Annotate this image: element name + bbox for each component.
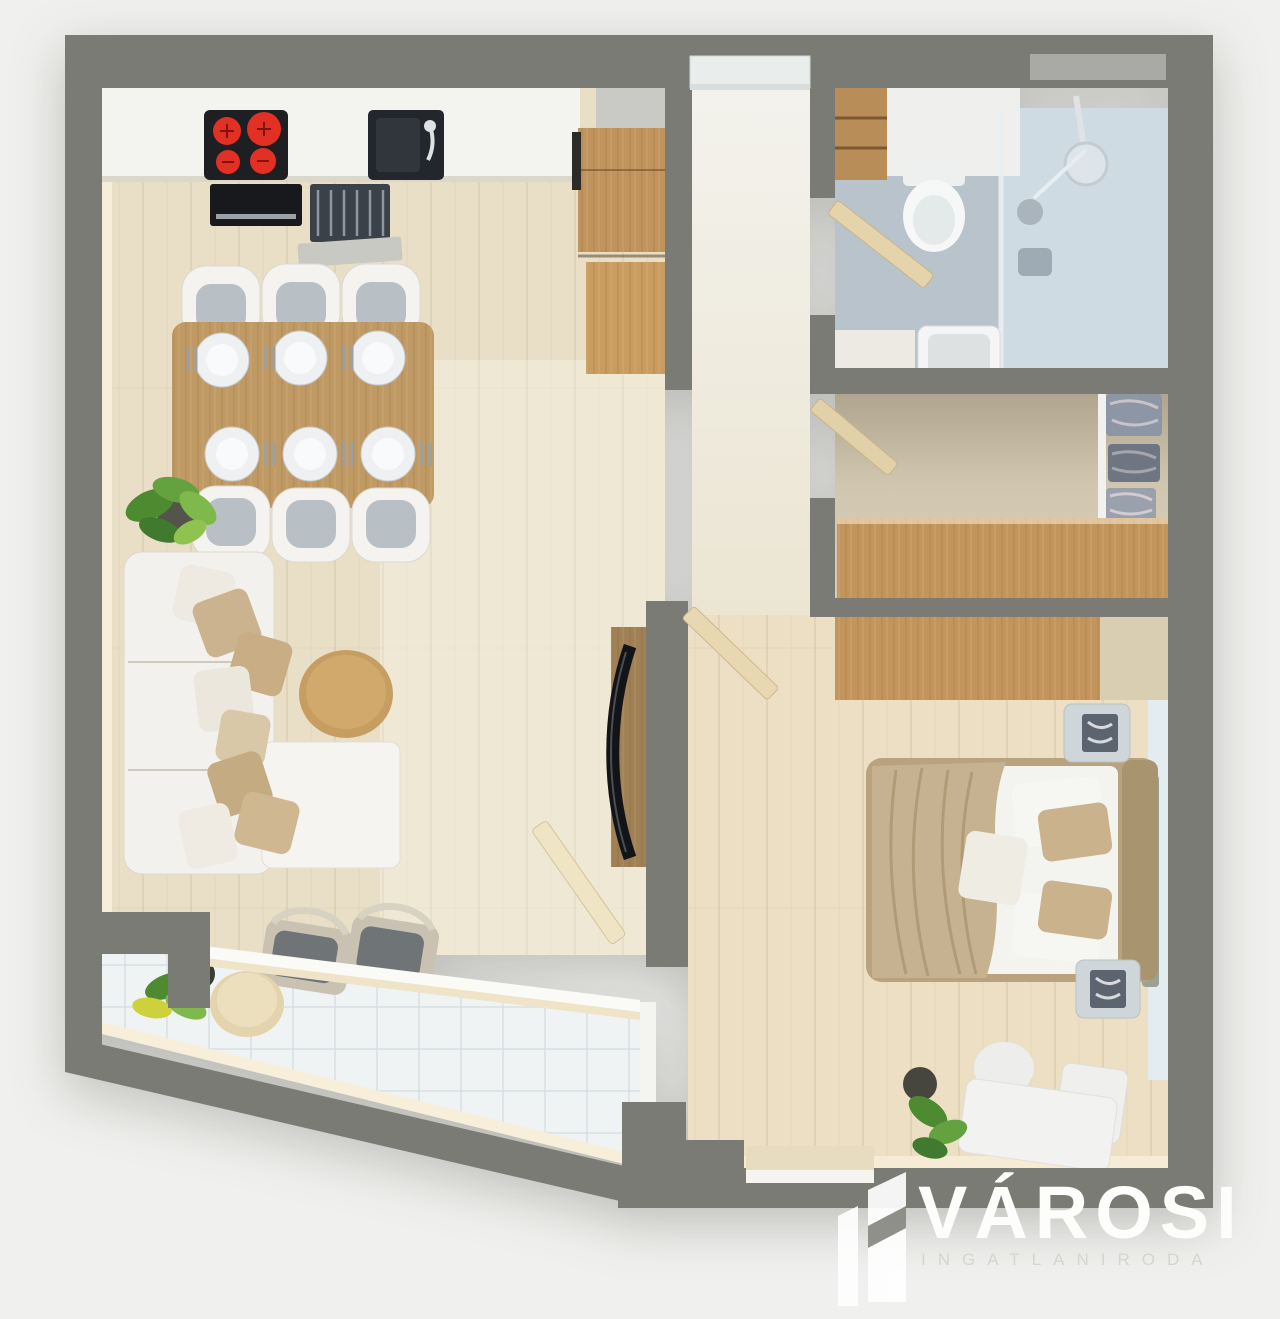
wall-right [1168,35,1213,1208]
wall-bath-closet [810,368,1168,394]
wall-closet-left [810,498,835,615]
wardrobe-icon [837,518,1168,600]
wall-kitchen-hall [665,88,692,390]
wooden-shelf-icon [835,88,887,180]
tall-cabinet-column [572,85,668,374]
apartment-plan [65,35,1213,1208]
wall-hall-bath-upper [810,88,835,198]
entry-hall-floor [692,88,810,618]
dresser-icon [835,617,1168,700]
entry-door-icon [690,56,810,90]
wall-closet-bedroom [810,598,1168,617]
floor-plan-canvas: VÁROSI INGATLANIRODA [0,0,1280,1319]
bottom-window [746,1146,874,1183]
side-table-top [217,973,277,1027]
wall-balcony-stub-b [168,912,210,1008]
hand-shower [1017,199,1043,225]
shower-stool [1018,248,1052,276]
kitchen-sink-icon [368,110,444,180]
logo-subtitle: INGATLANIRODA [921,1250,1215,1269]
floor-plan-svg: VÁROSI INGATLANIRODA [0,0,1280,1319]
wall-center-stub [646,601,688,967]
tv-panel [611,627,646,867]
wall-step-b [684,1140,744,1208]
oven-icon [210,184,302,226]
double-bed [866,758,1158,982]
nightstand-icon [1064,704,1130,762]
top-wall-window [1030,54,1166,80]
dishwasher-icon [297,184,402,268]
logo-title: VÁROSI [918,1171,1244,1254]
nightstand-icon [1076,960,1140,1018]
pillow-small [957,830,1029,907]
left-wall-face [102,88,112,914]
shelf-side-panel [1098,392,1106,522]
cooktop-icon [204,110,288,180]
dining-chair [272,488,350,562]
coffee-table-top [306,655,386,729]
pillow-tan [1037,879,1114,940]
pillow-tan [1037,801,1114,862]
kitchen-counter [102,88,580,180]
wall-step-a [622,1102,686,1208]
kitchen-counter-edge [102,176,580,182]
cabinet-gap [572,132,581,190]
toilet-icon [903,160,965,252]
dining-chair [352,488,430,562]
clothes-shelves-icon [1106,394,1162,522]
headboard [1122,760,1158,980]
